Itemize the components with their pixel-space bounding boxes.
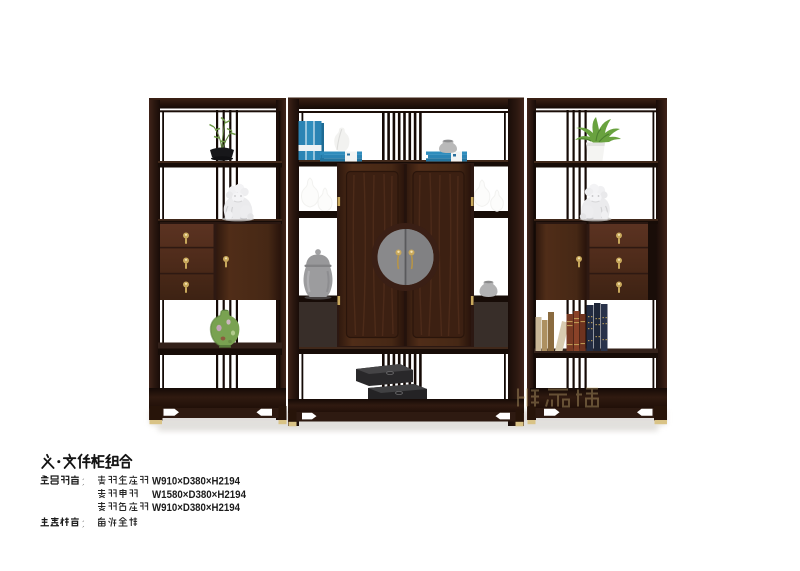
- svg-text:W910×D380×H2194: W910×D380×H2194: [152, 476, 241, 488]
- svg-text:W910×D380×H2194: W910×D380×H2194: [152, 502, 241, 514]
- svg-text:W1580×D380×H2194: W1580×D380×H2194: [152, 489, 247, 501]
